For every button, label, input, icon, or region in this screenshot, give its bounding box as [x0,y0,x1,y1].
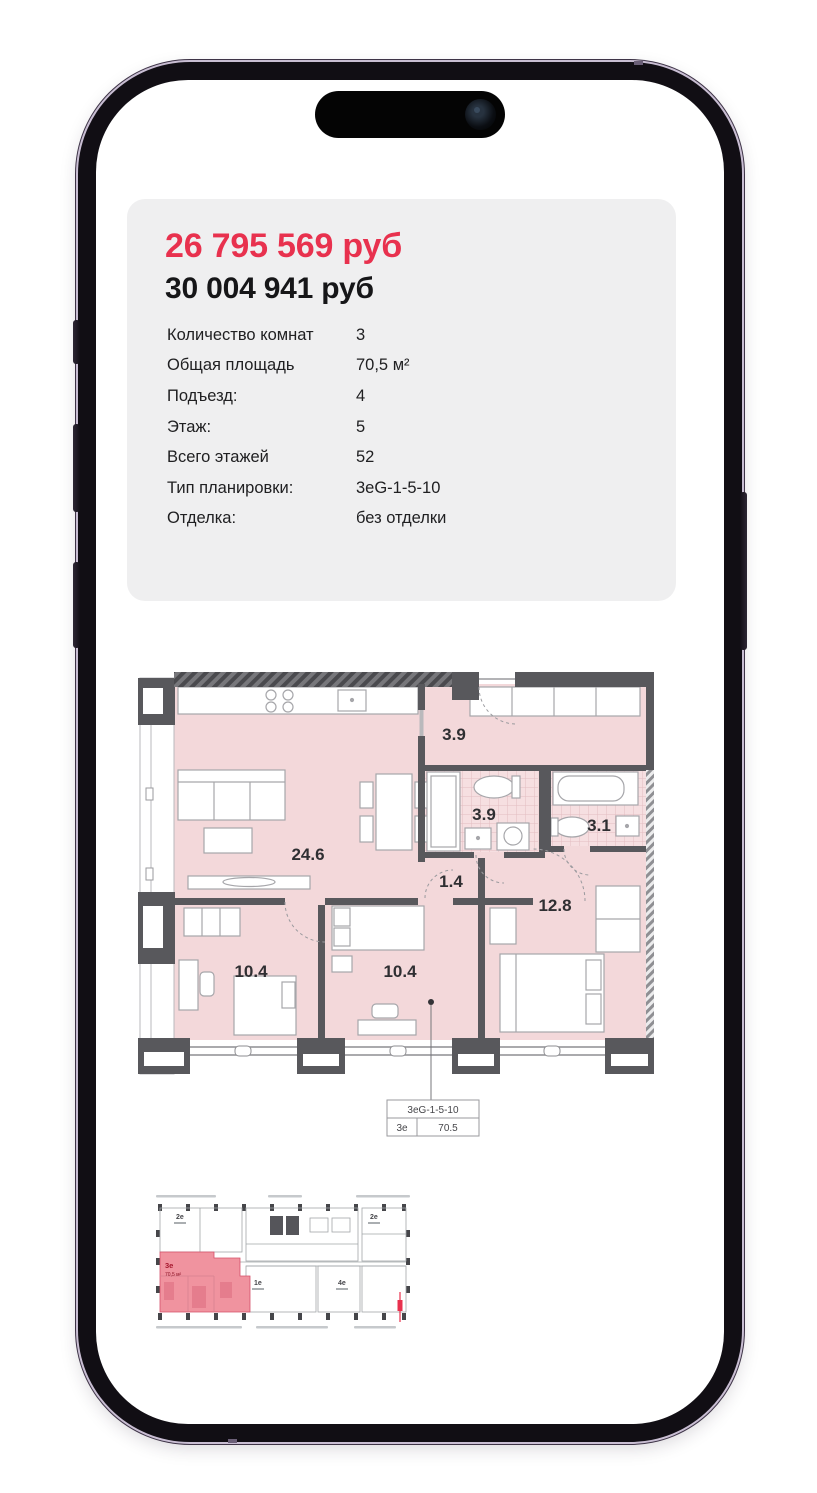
room-area-living: 24.6 [291,845,324,864]
attribute-row: Тип планировки: 3eG-1-5-10 [167,473,652,504]
red-location-marker [398,1292,403,1322]
power-button [740,492,747,650]
attr-label: Общая площадь [167,356,356,375]
volume-down-button [73,562,80,648]
elevator-core [270,1216,299,1235]
window-wall [138,1038,654,1074]
tag-unit-type: 3e [396,1123,408,1134]
attr-value: 70,5 м² [356,356,410,375]
mute-switch [73,320,80,364]
attr-value: 52 [356,448,374,467]
floor-plan: 24.6 3.9 3.9 3.1 1.4 12.8 10.4 10.4 [138,670,658,1145]
facade-column [140,678,174,1074]
room-area-corridor: 1.4 [439,872,463,891]
phone-frame: 26 795 569 руб 30 004 941 руб Количество… [78,62,742,1442]
attr-value: 5 [356,418,365,437]
attr-value: 3eG-1-5-10 [356,479,440,498]
attribute-row: Этаж: 5 [167,412,652,443]
base-price: 30 004 941 руб [165,272,374,306]
attr-label: Всего этажей [167,448,356,467]
attr-label: Тип планировки: [167,479,356,498]
attr-label: Этаж: [167,418,356,437]
antenna-line [228,1439,237,1443]
antenna-line [634,61,643,65]
attr-label: Отделка: [167,509,356,528]
selected-unit-shape[interactable] [160,1252,250,1312]
room-area-bedroom-main: 12.8 [538,896,571,915]
tag-layout-code: 3eG-1-5-10 [407,1105,459,1116]
volume-up-button [73,424,80,512]
attributes-table: Количество комнат 3 Общая площадь 70,5 м… [167,320,652,534]
mini-unit-area-strip [368,1222,380,1224]
dynamic-island [315,91,505,138]
room-area-bathroom-small: 3.1 [587,816,611,835]
attr-label: Количество комнат [167,326,356,345]
listing-info-card: 26 795 569 руб 30 004 941 руб Количество… [127,199,676,601]
mini-unit-area-strip [336,1288,348,1290]
attr-value: 3 [356,326,365,345]
phone-screen: 26 795 569 руб 30 004 941 руб Количество… [96,80,724,1424]
tag-total-area: 70.5 [438,1123,458,1134]
page: 26 795 569 руб 30 004 941 руб Количество… [0,0,817,1493]
mini-unit-label[interactable]: 4e [338,1280,346,1287]
attribute-row: Общая площадь 70,5 м² [167,351,652,382]
mini-unit-area-strip [252,1288,264,1290]
mini-selected-unit-area: 70,5 м² [165,1272,182,1278]
room-area-bedroom-middle: 10.4 [383,962,417,981]
sale-price: 26 795 569 руб [165,227,402,266]
attr-value: без отделки [356,509,446,528]
mini-unit-area-strip [174,1222,186,1224]
room-area-bedroom-left: 10.4 [234,962,268,981]
room-area-hall: 3.9 [442,725,466,744]
attribute-row: Отделка: без отделки [167,504,652,535]
room-area-bathroom: 3.9 [472,805,496,824]
attribute-row: Количество комнат 3 [167,320,652,351]
front-camera-icon [465,99,496,130]
attribute-row: Подъезд: 4 [167,381,652,412]
mini-unit-label[interactable]: 1e [254,1280,262,1287]
attr-value: 4 [356,387,365,406]
mini-selected-unit-label[interactable]: 3e [165,1261,173,1270]
attr-label: Подъезд: [167,387,356,406]
mini-unit-label[interactable]: 2e [370,1214,378,1221]
mini-unit-label[interactable]: 2e [176,1214,184,1221]
attribute-row: Всего этажей 52 [167,442,652,473]
building-floor-mini-plan: 2e 2e 1e 4e 3e 70,5 м² [150,1186,416,1338]
